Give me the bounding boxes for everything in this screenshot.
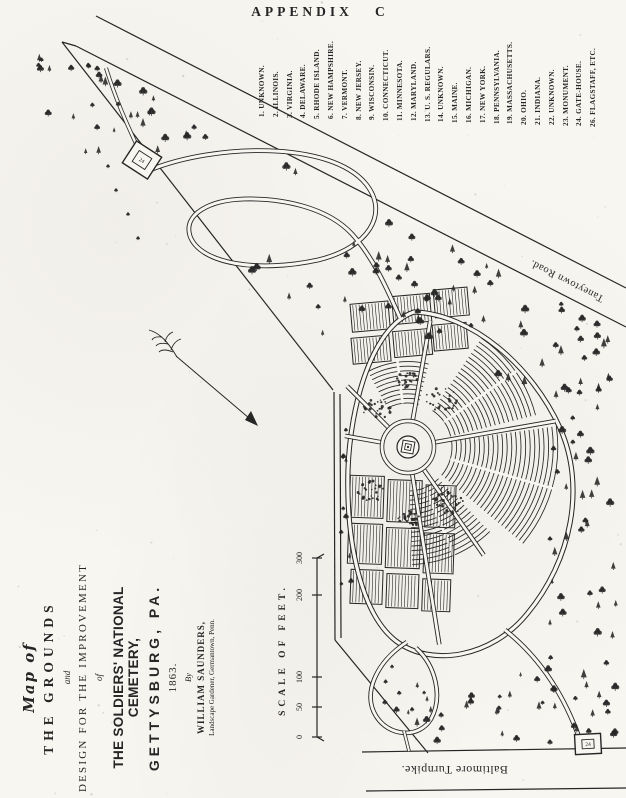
title-by: By (183, 673, 193, 682)
title-of: of (94, 674, 104, 681)
title-map-of: Map of (20, 642, 38, 713)
title-author: WILLIAM SAUNDERS, (196, 621, 206, 734)
scale-tick-number: 0 (295, 725, 305, 749)
compass-north-arrow (149, 330, 258, 426)
scale-bar-label: SCALE OF FEET. (278, 565, 290, 735)
grave-section-arcs (368, 338, 558, 564)
scale-tick-number: 300 (295, 546, 305, 570)
gatehouse-structure-south: 24 (574, 733, 601, 754)
fern-barb (152, 337, 162, 340)
compass-needle (176, 356, 256, 424)
gatehouse-structure-north: 24 (122, 141, 161, 179)
title-grounds: THE GROUNDS (41, 600, 57, 754)
title-author-sub: Landscape Gardener, Germantown, Penn. (208, 619, 216, 736)
title-and: and (62, 671, 72, 685)
compass-arrowhead-icon (245, 411, 258, 426)
title-design: DESIGN FOR THE IMPROVEMENT (77, 563, 89, 792)
title-year: 1863. (167, 663, 179, 693)
map-sheet: APPENDIX C 24 24 (0, 0, 626, 798)
fern-barb (156, 343, 168, 346)
fern-barb (165, 332, 173, 342)
monument-site (382, 421, 434, 473)
gatehouse-south-number: 24 (585, 742, 591, 748)
baltimore-turnpike-label: Baltimore Turnpike. (382, 762, 527, 777)
scale-tick-number: 50 (295, 695, 305, 719)
title-gettysburg: GETTYSBURG, PA. (146, 584, 162, 771)
title-cemetery: THE SOLDIERS' NATIONAL CEMETERY, (111, 556, 141, 798)
map-title-block: Map of THE GROUNDS and DESIGN FOR THE IM… (25, 556, 210, 798)
fern-barb (159, 350, 173, 352)
scale-tick-number: 100 (295, 665, 305, 689)
fern-barb (171, 339, 181, 350)
scale-tick-number: 200 (295, 583, 305, 607)
